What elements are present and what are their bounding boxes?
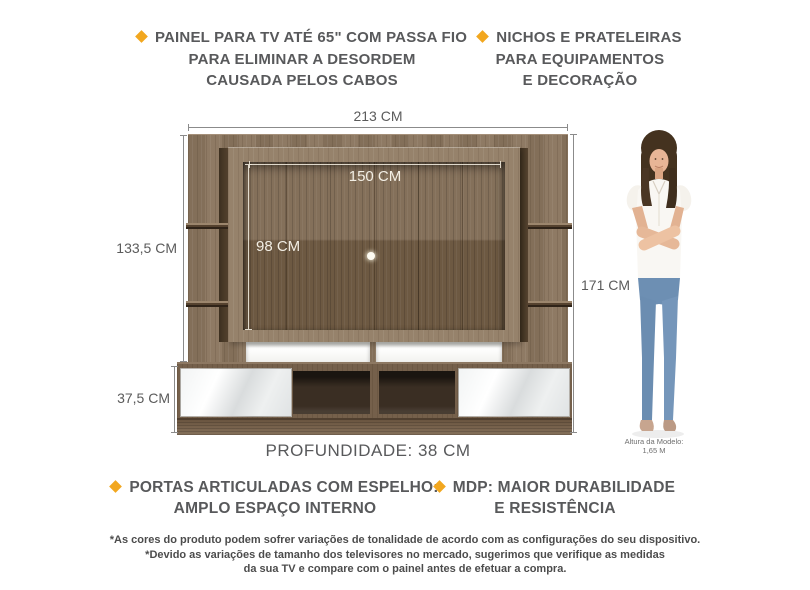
feature-line: NICHOS E PRATELEIRAS	[465, 27, 695, 49]
dim-label-total-width: 213 CM	[188, 108, 568, 124]
diamond-bullet-icon	[476, 30, 489, 43]
diamond-bullet-icon	[135, 30, 148, 43]
feature-line: E DECORAÇÃO	[465, 70, 695, 92]
disclaimer-line: *As cores do produto podem sofrer variaç…	[55, 533, 755, 548]
feature-line: PARA ELIMINAR A DESORDEM	[122, 49, 482, 71]
model-caption-line: Altura da Modelo:	[608, 437, 700, 446]
left-shelf-bottom	[186, 301, 228, 307]
feature-line: PAINEL PARA TV ATÉ 65" COM PASSA FIO	[122, 27, 482, 49]
model-height-caption: Altura da Modelo: 1,65 M	[608, 437, 700, 455]
feature-line: PARA EQUIPAMENTOS	[465, 49, 695, 71]
product-infographic: PAINEL PARA TV ATÉ 65" COM PASSA FIO PAR…	[0, 0, 810, 590]
diamond-bullet-icon	[109, 480, 122, 493]
disclaimer-line: da sua TV e compare com o painel antes d…	[55, 562, 755, 577]
disclaimer-text: *As cores do produto podem sofrer variaç…	[55, 533, 755, 577]
feature-top-left: PAINEL PARA TV ATÉ 65" COM PASSA FIO PAR…	[122, 27, 482, 92]
feature-bottom-left: PORTAS ARTICULADAS COM ESPELHO: AMPLO ES…	[100, 477, 450, 519]
right-shelf-top	[528, 223, 572, 229]
cabinet-base	[177, 418, 572, 435]
left-shelf-top	[186, 223, 228, 229]
cable-hole	[367, 252, 375, 260]
dim-label-upper-height: 133,5 CM	[95, 240, 177, 256]
frame-gap-right	[520, 148, 528, 342]
open-compartment-left	[293, 371, 370, 414]
diamond-bullet-icon	[433, 480, 446, 493]
feature-line: CAUSADA PELOS CABOS	[122, 70, 482, 92]
dim-line-total-width	[188, 127, 568, 128]
dim-label-lower-height: 37,5 CM	[95, 390, 170, 406]
feature-line: MDP: MAIOR DURABILIDADE	[420, 477, 690, 498]
model-caption-line: 1,65 M	[608, 446, 700, 455]
feature-bottom-right: MDP: MAIOR DURABILIDADE E RESISTÊNCIA	[420, 477, 690, 519]
feature-line: E RESISTÊNCIA	[420, 498, 690, 519]
feature-line: PORTAS ARTICULADAS COM ESPELHO:	[100, 477, 450, 498]
open-compartment-right	[379, 371, 455, 414]
feature-top-right: NICHOS E PRATELEIRAS PARA EQUIPAMENTOS E…	[465, 27, 695, 92]
dim-label-tv-height: 98 CM	[256, 238, 300, 255]
dim-line-upper-height	[183, 135, 184, 362]
frame-gap-left	[219, 148, 228, 342]
right-shelf-bottom	[528, 301, 572, 307]
model-figure-graphic	[612, 128, 704, 440]
feature-line-text: NICHOS E PRATELEIRAS	[496, 29, 681, 46]
dim-line-total-height	[573, 134, 574, 433]
disclaimer-line: *Devido as variações de tamanho dos tele…	[55, 548, 755, 563]
dim-line-tv-width	[249, 164, 501, 165]
mirror-door-right	[458, 368, 570, 417]
feature-line-text: MDP: MAIOR DURABILIDADE	[453, 479, 675, 496]
upper-niche-left	[246, 342, 370, 362]
depth-label: PROFUNDIDADE: 38 CM	[238, 441, 498, 461]
model-photo	[612, 128, 704, 440]
dim-line-lower-height	[174, 366, 175, 433]
feature-line: AMPLO ESPAÇO INTERNO	[100, 498, 450, 519]
mirror-door-left	[180, 368, 292, 417]
dim-label-tv-width: 150 CM	[249, 168, 501, 185]
upper-niche-right	[376, 342, 502, 362]
dim-line-tv-height	[248, 164, 249, 330]
feature-line-text: PORTAS ARTICULADAS COM ESPELHO:	[129, 479, 438, 496]
feature-line-text: PAINEL PARA TV ATÉ 65" COM PASSA FIO	[155, 29, 467, 46]
